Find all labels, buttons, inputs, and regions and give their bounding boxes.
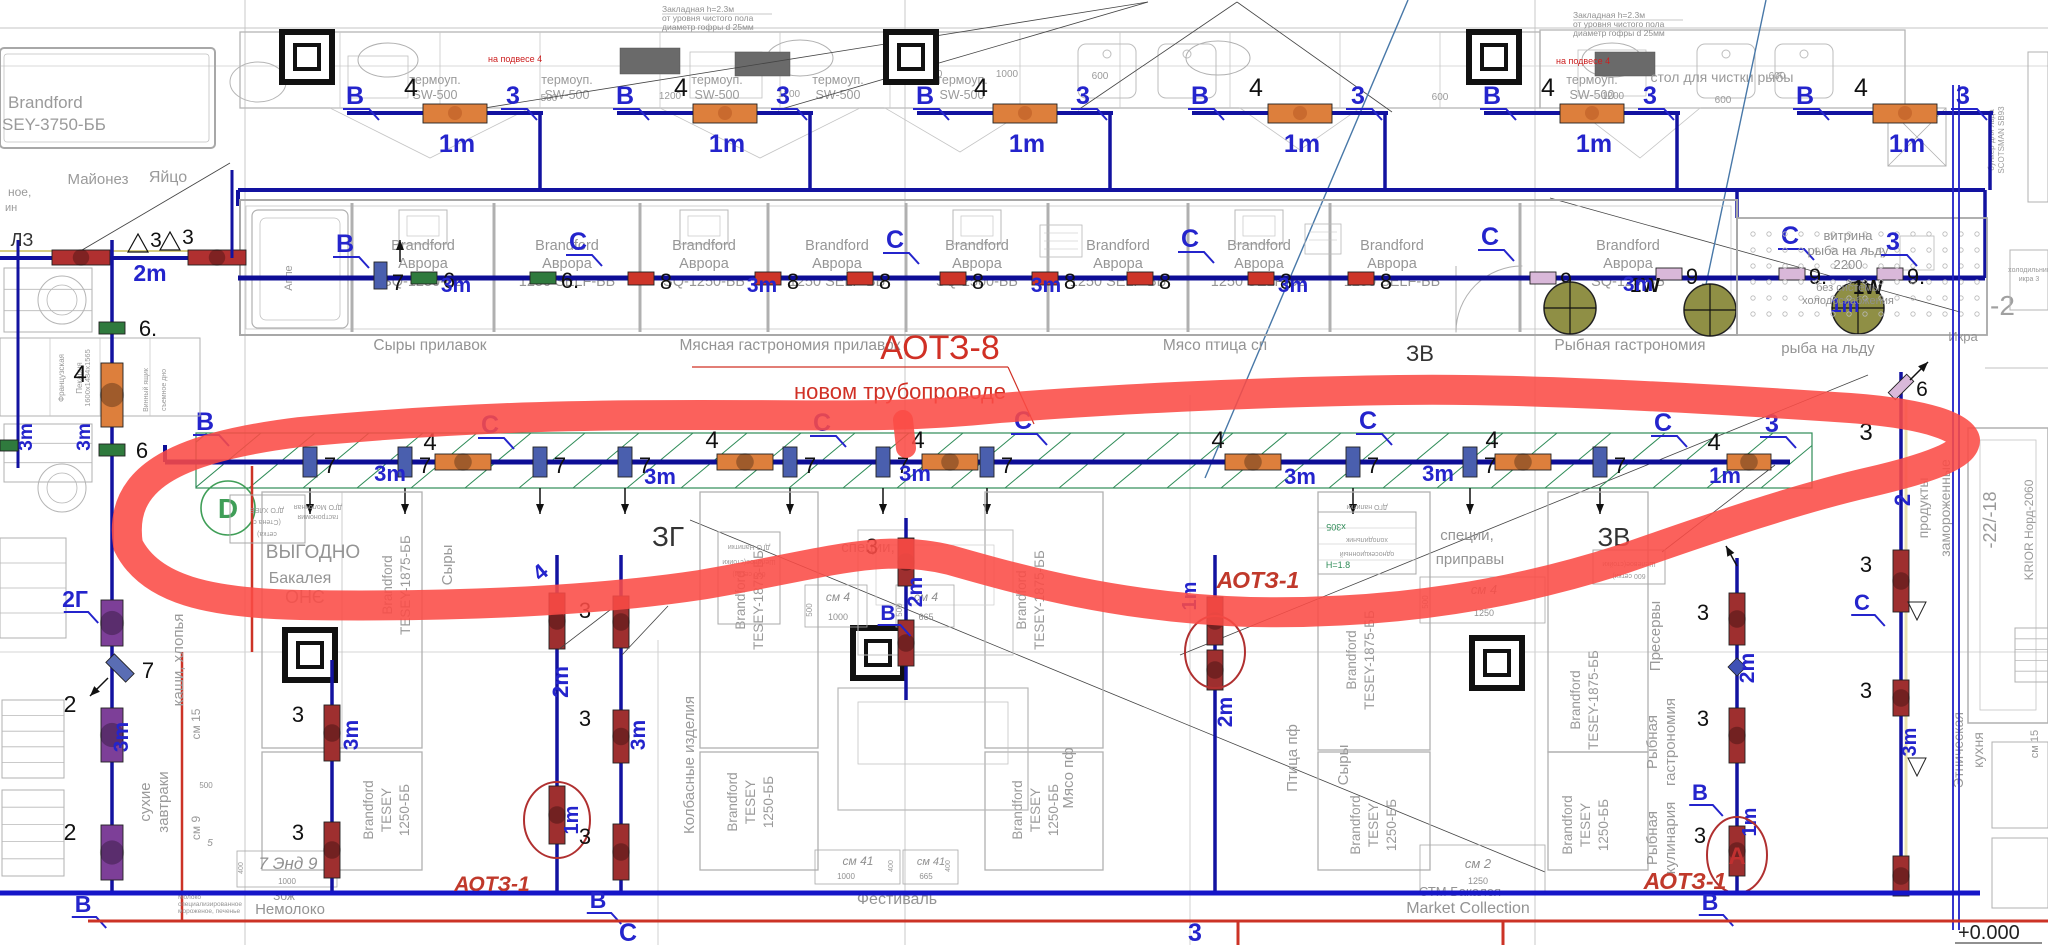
label: 3m: [441, 274, 471, 297]
valve: [411, 272, 437, 284]
valve: [618, 447, 632, 477]
valve-number: 4: [404, 74, 418, 102]
label: ин: [5, 202, 17, 214]
equipment-dark: [620, 48, 680, 74]
rotated-label: Винный ящик: [142, 367, 150, 412]
rotated-label: Brandford: [1568, 670, 1583, 729]
label: ДГО Напитки: [728, 543, 770, 550]
pipe-label-tick: [1651, 436, 1687, 447]
label: мороженое, печенье: [178, 908, 241, 915]
valve-core: [1892, 572, 1910, 590]
label: диаметр гофры d 25мм: [662, 22, 754, 32]
striped-box: [2, 790, 64, 876]
label: 2: [64, 819, 77, 845]
pipe-label-tick: [1178, 252, 1214, 263]
label: холодильник: [1345, 536, 1388, 543]
valve: [303, 447, 317, 477]
pipe-label: В: [616, 82, 634, 110]
case-series: Аврора: [1603, 256, 1654, 272]
arrow-head: [1726, 546, 1734, 557]
label: без системы: [1816, 282, 1880, 294]
rect: [260, 218, 340, 320]
pipe-label: С: [619, 919, 637, 945]
valve: [1779, 268, 1805, 280]
column-marker-inner: [866, 641, 890, 665]
label: 1000: [837, 872, 855, 881]
label: диаметр гофры d 25мм: [1573, 28, 1665, 38]
rotated-label: 3m: [110, 722, 133, 752]
case-brand: Brandford: [1227, 238, 1291, 254]
cabinet: [700, 752, 818, 870]
rotated-label: см 9: [189, 816, 203, 841]
equipment-label: SW-500: [816, 88, 861, 102]
rect: [407, 216, 439, 236]
label: 600: [1432, 92, 1449, 103]
label: 4: [705, 427, 718, 454]
area-label: ВЫГОДНО: [266, 542, 360, 563]
valve-number: 7: [1484, 453, 1496, 478]
valve-core: [100, 840, 124, 864]
rotated-label: завтраки: [155, 771, 172, 832]
rotated-label: TESEY-1875-ББ: [1362, 610, 1377, 710]
sink-tap-icon: [1722, 50, 1730, 58]
rotated-label: TESEY-1875-ББ: [1586, 650, 1601, 750]
column-marker-inner: [295, 45, 319, 69]
pipe-label: C: [569, 228, 587, 256]
valve: [1593, 447, 1607, 477]
pipe-label-tick: [883, 253, 919, 264]
valve-number: 8: [660, 269, 672, 294]
rotated-label: кулинария: [1662, 802, 1679, 875]
ellipse: [1186, 41, 1250, 75]
pipe-length-label: 1m: [1284, 130, 1320, 158]
valve-number: 7: [1614, 453, 1626, 478]
pipe-label: C: [1181, 225, 1199, 253]
label: 3m: [1284, 464, 1316, 489]
valve: [1463, 447, 1477, 477]
label: 665: [919, 872, 933, 881]
pipe-label: 3: [1643, 82, 1657, 110]
valve-core: [73, 249, 90, 266]
area-label: Мясо птица сп: [1163, 337, 1267, 354]
label: 4: [1211, 427, 1224, 454]
valve-core: [897, 634, 915, 652]
rotated-label: Brandford: [1348, 795, 1363, 854]
label: Brandford: [8, 93, 83, 112]
pipe-label: В: [346, 82, 364, 110]
rotated-label: кухня: [1970, 732, 1986, 768]
valve-core: [1728, 610, 1746, 628]
label: специализированное: [178, 901, 242, 908]
valve-core: [100, 383, 124, 407]
label: 2: [64, 691, 77, 717]
valve-number: 8: [1159, 269, 1171, 294]
label: односекционный: [1340, 550, 1395, 558]
label: 3: [1188, 919, 1202, 945]
valve: [847, 272, 873, 285]
valve-core: [1740, 453, 1758, 471]
valve-number: 4: [674, 74, 688, 102]
rotated-label: Сыры: [439, 545, 456, 586]
pipe-label: C: [1481, 223, 1499, 251]
equipment-label: SW-500: [413, 88, 458, 102]
valve-number: 4: [974, 74, 988, 102]
aotz1-label: АОТЗ-1: [1216, 567, 1300, 593]
pipe-length-label: 1m: [1889, 130, 1925, 158]
label: SEY-3750-ББ: [2, 115, 106, 134]
rotated-label: 1250-ББ: [761, 776, 776, 828]
valve: [940, 272, 966, 285]
arrow-head: [621, 504, 629, 514]
valve-core: [1206, 661, 1224, 679]
label: 3m: [1278, 274, 1308, 297]
label: 3: [1860, 678, 1872, 703]
label: приправы: [1436, 551, 1504, 568]
label: (Стена с: [253, 518, 281, 525]
label: ное,: [8, 185, 31, 199]
label: 2m: [133, 260, 166, 286]
red-note: на подвесе 4: [1556, 56, 1610, 66]
valve: [1127, 272, 1153, 285]
valve-number: 7: [324, 453, 336, 478]
label: 7 Энд 9: [259, 854, 318, 873]
pipe-label-tick: [1356, 434, 1392, 445]
leader-line: [472, 2, 1148, 110]
red-marker-drip: [903, 420, 906, 448]
label: 3m: [1623, 273, 1653, 296]
label: холодоснабжения: [1802, 295, 1894, 307]
rotated-label: 3m: [16, 423, 37, 450]
label: х305: [1326, 522, 1346, 532]
rotated-label: TESEY: [743, 780, 758, 824]
polygon: [128, 234, 148, 252]
pipe-label: 3: [506, 82, 520, 110]
rotated-label: 1250-ББ: [397, 784, 412, 836]
pipe-label: В: [590, 887, 607, 913]
rotated-label: 3m: [627, 720, 650, 750]
valve-number: 6.: [561, 268, 579, 293]
sink-tap-icon: [1103, 50, 1111, 58]
case-series: Аврора: [812, 256, 863, 272]
area-label: Рыбная гастрономия: [1554, 337, 1705, 354]
case-brand: Brandford: [672, 238, 736, 254]
label: гастрономия: [297, 513, 338, 520]
aotz1-label: АОТЗ-1: [1643, 868, 1727, 894]
label: 3: [1694, 823, 1706, 848]
label: ДГО напитки: [1346, 503, 1387, 510]
rotated-label: гастрономия: [1662, 698, 1679, 786]
pipe-label: 3: [776, 82, 790, 110]
label: 3: [292, 820, 304, 845]
case-brand: Brandford: [535, 238, 599, 254]
label: ДГО Молочная: [294, 503, 342, 510]
leader-line: [1078, 2, 1237, 110]
valve-core: [718, 106, 732, 120]
rotated-label: 400: [945, 860, 952, 872]
rotated-label: Brandford: [1344, 630, 1359, 689]
refrigeration-plan-drawing: термоуп.SW-500термоуп.SW-500термоуп.SW-5…: [0, 0, 2048, 945]
service-box: [252, 210, 348, 328]
case-brand: Brandford: [945, 238, 1009, 254]
valve: [876, 447, 890, 477]
case-brand: Brandford: [1596, 238, 1660, 254]
pipe-label-tick: [1011, 434, 1047, 445]
pipe-label: C: [1654, 409, 1672, 437]
valve-number: 7: [142, 658, 154, 683]
pipe-label: В: [880, 602, 895, 625]
rotated-label: Французская: [57, 354, 66, 402]
valve-core: [1293, 106, 1307, 120]
sink-tap-icon: [1800, 50, 1808, 58]
pipe-label: C: [886, 226, 904, 254]
label: 1000: [828, 612, 848, 622]
label: 3: [292, 702, 304, 727]
equipment-label: SW-500: [695, 88, 740, 102]
zone-label: ЗГ: [652, 521, 684, 552]
pipe-label: В: [1796, 82, 1814, 110]
label: D: [218, 493, 238, 524]
pipe-label: 2Г: [62, 586, 88, 612]
valve-number: 7: [419, 453, 431, 478]
arrow-head: [536, 504, 544, 514]
label: -2: [1990, 290, 2015, 321]
rect: [1243, 216, 1275, 236]
rotated-label: 2m: [548, 666, 573, 698]
valve-number: 8: [787, 269, 799, 294]
valve-number: 9.: [1907, 264, 1925, 289]
label: 3: [579, 706, 591, 731]
label: сетка): [257, 530, 277, 537]
pipe-label: В: [196, 408, 214, 436]
label: H=1.8: [1326, 560, 1350, 570]
rotated-label: 1m: [1739, 808, 1761, 837]
valve-number: 4: [1249, 74, 1263, 102]
rotated-label: 3m: [340, 720, 363, 750]
rotated-label: 400: [238, 862, 245, 874]
case-series: Аврора: [1093, 256, 1144, 272]
rect: [1992, 838, 2048, 908]
label: витрина: [1823, 228, 1873, 243]
valve: [99, 322, 125, 334]
label: 600: [1092, 71, 1109, 82]
label: ЗВ: [1406, 341, 1434, 366]
rotated-label: 2: [1890, 494, 1915, 506]
rotated-label: 3m: [74, 423, 95, 450]
rotated-label: сухие: [137, 782, 154, 821]
valve: [1348, 272, 1374, 285]
case-series: Аврора: [398, 256, 449, 272]
rotated-label: 400: [888, 860, 895, 872]
rotated-label: 3m: [1899, 728, 1921, 757]
valve-core: [1892, 867, 1910, 885]
label: см 4: [826, 590, 851, 604]
rotated-label: Сыры: [1335, 745, 1352, 786]
label: 3m: [644, 464, 676, 489]
valve-core: [454, 453, 472, 471]
rect: [838, 688, 1028, 810]
pipe-label-tick: [64, 612, 98, 623]
rotated-label: Пресервы: [1647, 601, 1664, 671]
label: 4: [1707, 429, 1720, 456]
rotated-label: продукты: [1915, 478, 1931, 539]
valve-number: 9: [1686, 264, 1698, 289]
label: 3m: [899, 461, 931, 486]
rotated-label: KRIOR Норд-2060: [2022, 479, 2036, 580]
label: 3: [579, 824, 591, 849]
valve: [106, 654, 134, 682]
valve-number: 7: [554, 453, 566, 478]
rotated-label: Мясо пф: [1060, 747, 1077, 808]
area-label: Мясная гастрономия прилавок: [680, 337, 901, 354]
case-series: Аврора: [1367, 256, 1418, 272]
rotated-label: -22/-18: [1980, 491, 2000, 548]
rotated-label: см 15: [2029, 730, 2041, 758]
rotated-label: SCOTSMAN SB93: [1997, 106, 2006, 174]
label: 600: [1715, 95, 1732, 106]
pipe-label: В: [1692, 780, 1708, 805]
area-label: рыба на льду: [1781, 340, 1875, 357]
valve-core: [1892, 689, 1910, 707]
valve-core: [1018, 106, 1032, 120]
aotz1-label: АОТЗ-1: [453, 873, 529, 896]
rotated-label: Птица пф: [1284, 724, 1301, 792]
rotated-label: 1250-ББ: [1596, 799, 1611, 851]
striped-box: [2, 700, 64, 778]
area-label: Немолоко: [255, 901, 325, 918]
rotated-label: 2m: [904, 577, 927, 607]
pipe-label: 3: [1351, 82, 1365, 110]
valve-core: [448, 106, 462, 120]
circle: [38, 276, 86, 324]
polygon: [160, 232, 180, 250]
pipe-length-label: 1m: [1009, 130, 1045, 158]
rotated-label: 2m: [1736, 653, 1759, 683]
pipe-label-tick: [1478, 250, 1514, 261]
pipe-length-label: 1m: [1576, 130, 1612, 158]
valve-number: 6: [136, 438, 148, 463]
elevation-label: +0.000: [1958, 922, 2020, 944]
label: 1000: [278, 877, 296, 886]
label: 4: [527, 558, 553, 586]
valve-number: 4: [1854, 74, 1868, 102]
case-brand: Brandford: [1360, 238, 1424, 254]
valve-number: 8: [1064, 269, 1076, 294]
valve-number: 4: [1541, 74, 1555, 102]
label: 665: [918, 612, 933, 622]
valve: [99, 444, 125, 456]
valve: [1530, 272, 1556, 284]
valve-number: 8: [879, 269, 891, 294]
label: 1m: [1709, 463, 1741, 488]
valve: [533, 447, 547, 477]
label: холодильник: [2008, 267, 2048, 274]
pipe-label: В: [1191, 82, 1209, 110]
pipe-length-label: 1m: [709, 130, 745, 158]
pipe-label: В: [75, 891, 92, 917]
label: 3m: [374, 461, 406, 486]
valve-core: [209, 249, 226, 266]
valve-number: 7: [1367, 453, 1379, 478]
valve-core: [323, 724, 341, 742]
valve-core: [941, 453, 959, 471]
label: 3m: [1422, 461, 1454, 486]
rotated-label: Колбасные изделия: [681, 696, 698, 834]
red-note: на подвесе 4: [488, 54, 542, 64]
label: 500: [199, 781, 213, 790]
pipe-label: В: [336, 230, 354, 258]
case-brand: Brandford: [1086, 238, 1150, 254]
polygon: [660, 108, 860, 158]
pipe-length-label: 1m: [439, 130, 475, 158]
valve-number: 8: [1380, 269, 1392, 294]
label: 1000: [996, 69, 1019, 80]
label: 2200: [1834, 257, 1863, 272]
case-series: Аврора: [1234, 256, 1285, 272]
label: ДГО ХЛЕБ: [250, 506, 284, 513]
label: 5: [207, 838, 213, 849]
valve: [1346, 447, 1360, 477]
rotated-label: Рыбная: [1644, 715, 1661, 769]
arrow-head: [401, 504, 409, 514]
rotated-label: съемное дно: [161, 369, 168, 411]
pipe-label: C: [1359, 407, 1377, 435]
rotated-label: см 15: [189, 708, 203, 739]
valve-core: [612, 613, 630, 631]
pipe-label: В: [1483, 82, 1501, 110]
valve-core: [1514, 453, 1532, 471]
label: 3: [150, 229, 162, 252]
column-marker-inner: [1482, 45, 1506, 69]
arrow-head: [1466, 504, 1474, 514]
valve: [628, 272, 654, 285]
label: А: [1728, 843, 1745, 870]
column-marker-inner: [1485, 651, 1509, 675]
ellipse: [358, 43, 418, 77]
arrow-head: [786, 504, 794, 514]
rect: [688, 216, 720, 236]
label: 3m: [1031, 274, 1061, 297]
label: 4: [73, 361, 86, 388]
arrow-head: [879, 504, 887, 514]
label: см 2: [1465, 856, 1492, 871]
label: 3: [1860, 552, 1872, 577]
pipe-label: 3: [1076, 82, 1090, 110]
valve-core: [612, 843, 630, 861]
valve-number: 8: [972, 269, 984, 294]
pipe-label-tick: [1760, 437, 1796, 448]
striped-box: [2015, 628, 2048, 682]
pipe-label-tick: [1689, 805, 1723, 816]
area-label: Market Collection: [1406, 900, 1530, 917]
rotated-label: 500: [895, 603, 904, 617]
case-brand: Brandford: [805, 238, 869, 254]
rotated-label: Brandford: [725, 772, 740, 831]
rotated-label: Brandford: [1560, 795, 1575, 854]
pipe-label: 3: [1886, 228, 1900, 256]
polygon: [1908, 602, 1926, 620]
valve-core: [1585, 106, 1599, 120]
aotz8-label: АОТЗ-8: [880, 329, 1000, 367]
area-label: Сыры прилавок: [373, 337, 486, 354]
equipment-label: термоуп.: [1566, 73, 1617, 87]
rotated-label: TESEY: [379, 788, 394, 832]
arrow-head: [1596, 504, 1604, 514]
case-series: Аврора: [679, 256, 730, 272]
label: 3m: [747, 274, 777, 297]
rotated-label: Рыбная: [1644, 811, 1661, 865]
pipe-label-tick: [1851, 615, 1885, 626]
arrow-head: [983, 504, 991, 514]
